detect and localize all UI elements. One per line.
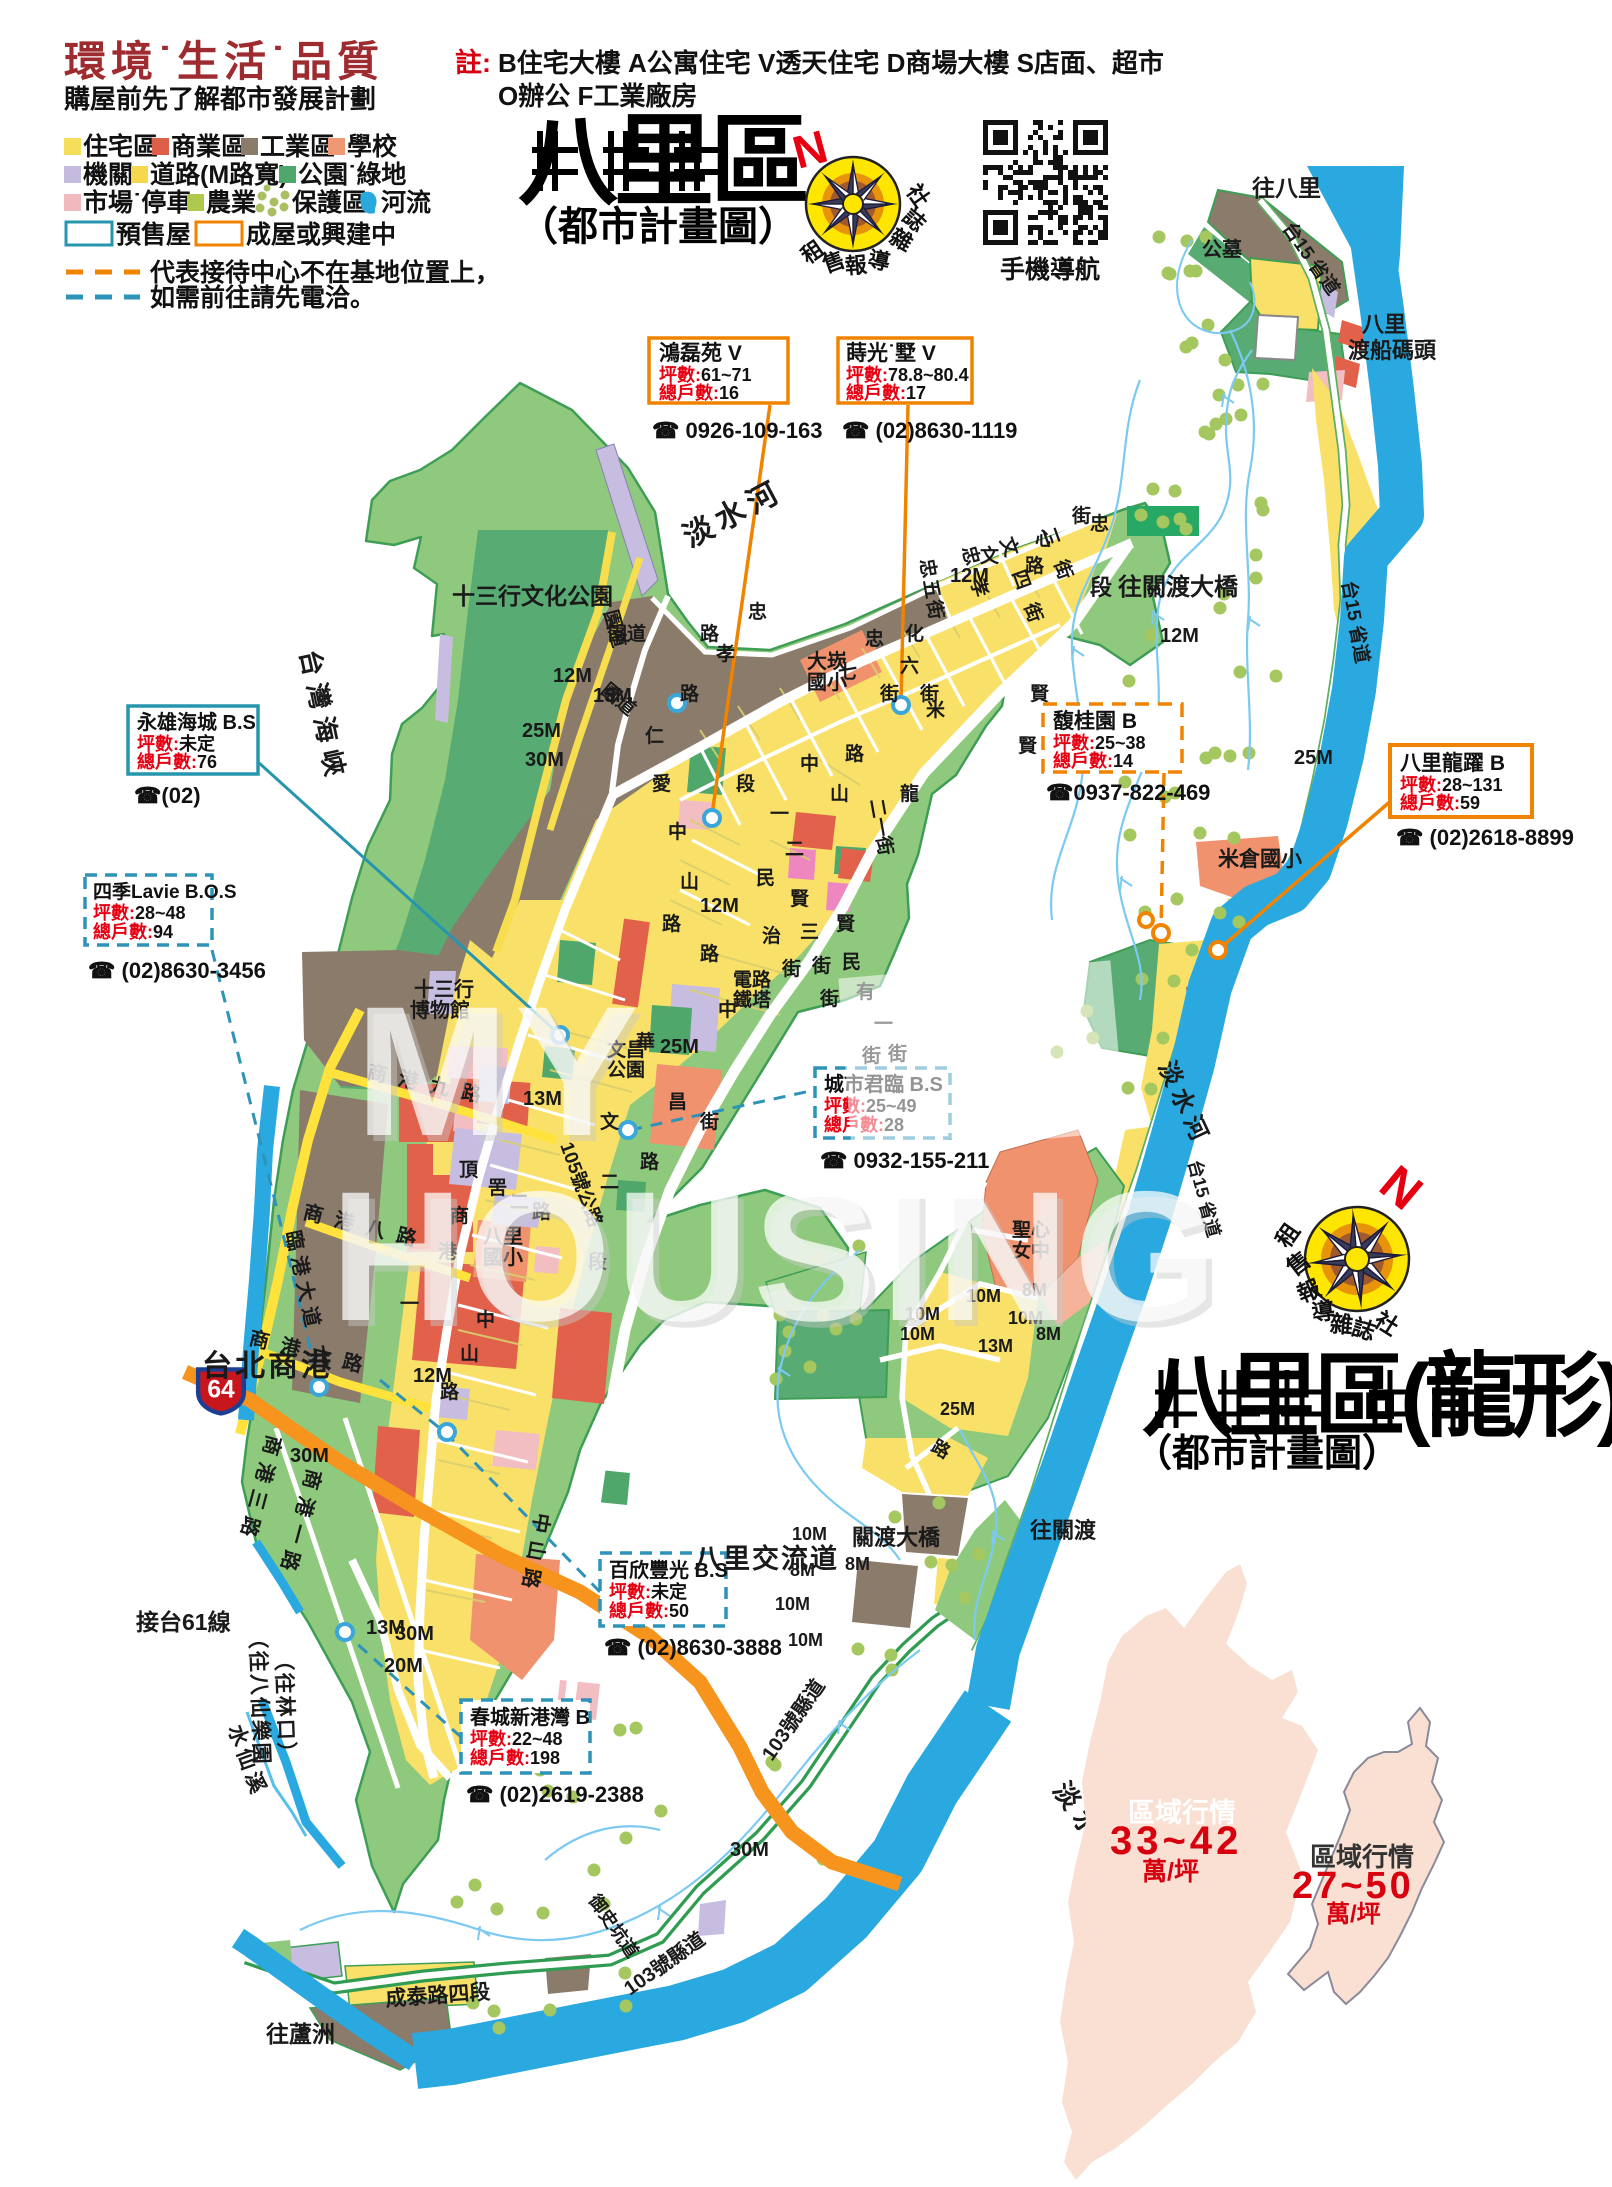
svg-text:（都市計畫圖）: （都市計畫圖） xyxy=(1134,1433,1400,1475)
svg-text:路: 路 xyxy=(1025,554,1045,577)
svg-text:街: 街 xyxy=(879,682,899,705)
svg-text:代表接待中心不在基地位置上，: 代表接待中心不在基地位置上， xyxy=(149,258,500,287)
svg-text:路: 路 xyxy=(440,1380,460,1403)
svg-text:四季Lavie B.O.S: 四季Lavie B.O.S xyxy=(93,881,237,903)
svg-text:文: 文 xyxy=(980,544,1000,567)
svg-text:總戶數:17: 總戶數:17 xyxy=(846,382,926,403)
svg-text:商業區: 商業區 xyxy=(171,132,246,161)
svg-text:總戶數:50: 總戶數:50 xyxy=(609,1600,689,1621)
svg-text:御史坑道: 御史坑道 xyxy=(584,1889,643,1961)
svg-text:12M: 12M xyxy=(553,665,592,687)
svg-text:路: 路 xyxy=(700,942,720,965)
svg-text:總戶數:76: 總戶數:76 xyxy=(137,751,217,772)
svg-text:農業: 農業 xyxy=(206,189,256,217)
svg-text:山: 山 xyxy=(830,783,849,805)
svg-text:萬/坪: 萬/坪 xyxy=(1142,1858,1199,1886)
svg-text:坪數:22~48: 坪數:22~48 xyxy=(470,1729,563,1749)
svg-text:住宅區: 住宅區 xyxy=(83,132,158,161)
svg-text:孝: 孝 xyxy=(716,643,735,665)
svg-text:永雄海城 B.S: 永雄海城 B.S xyxy=(136,710,256,734)
svg-text:總戶數:14: 總戶數:14 xyxy=(1053,750,1133,771)
svg-text:公墓: 公墓 xyxy=(1202,237,1243,261)
svg-text:愛: 愛 xyxy=(652,773,671,795)
svg-text:民: 民 xyxy=(842,952,861,973)
svg-text:賢: 賢 xyxy=(1018,735,1038,757)
svg-text:仁: 仁 xyxy=(645,724,664,747)
svg-text:賢: 賢 xyxy=(1030,683,1050,705)
svg-text:☎0937-822-469: ☎0937-822-469 xyxy=(1046,780,1210,805)
svg-text:賢: 賢 xyxy=(790,888,810,910)
svg-text:12M: 12M xyxy=(700,895,739,917)
svg-text:路: 路 xyxy=(662,912,682,935)
svg-text:☎ 0926-109-163: ☎ 0926-109-163 xyxy=(652,418,823,443)
svg-text:坪數:28~131: 坪數:28~131 xyxy=(1400,775,1503,795)
svg-text:民: 民 xyxy=(756,868,775,889)
svg-text:成屋或興建中: 成屋或興建中 xyxy=(246,221,396,249)
svg-text:10M: 10M xyxy=(788,1630,823,1650)
svg-text:30M: 30M xyxy=(290,1445,329,1467)
svg-text:接台61線: 接台61線 xyxy=(136,1609,231,1635)
svg-text:☎ (02)8630-3888: ☎ (02)8630-3888 xyxy=(604,1635,782,1660)
svg-text:社: 社 xyxy=(901,179,934,211)
svg-text:機關: 機關 xyxy=(83,161,133,189)
svg-text:段: 段 xyxy=(1090,575,1112,600)
svg-text:總戶數:94: 總戶數:94 xyxy=(93,921,173,942)
svg-text:山: 山 xyxy=(680,871,699,893)
svg-text:30M: 30M xyxy=(730,1839,769,1861)
svg-text:治: 治 xyxy=(762,924,781,947)
svg-text:鐵塔: 鐵塔 xyxy=(733,988,772,1011)
svg-text:往蘆洲: 往蘆洲 xyxy=(266,2021,335,2047)
svg-text:☎(02): ☎(02) xyxy=(134,783,201,808)
svg-text:電路: 電路 xyxy=(733,968,772,991)
svg-text:坪數:未定: 坪數:未定 xyxy=(137,733,215,754)
svg-text:工業區: 工業區 xyxy=(260,133,335,161)
svg-text:坪數:61~71: 坪數:61~71 xyxy=(659,365,752,385)
svg-text:忠: 忠 xyxy=(748,601,767,623)
svg-text:八里龍躍 B: 八里龍躍 B xyxy=(1400,751,1505,775)
svg-text:總戶數:198: 總戶數:198 xyxy=(470,1747,560,1768)
svg-text:鴻磊苑 V: 鴻磊苑 V xyxy=(659,341,742,365)
svg-text:環境˙生活˙品質: 環境˙生活˙品質 xyxy=(64,38,384,85)
svg-text:8M: 8M xyxy=(790,1560,815,1580)
svg-text:萬/坪: 萬/坪 xyxy=(1326,1901,1381,1928)
svg-text:中: 中 xyxy=(718,998,737,1021)
svg-text:馥桂園 B: 馥桂園 B xyxy=(1053,709,1137,733)
svg-text:關渡大橋: 關渡大橋 xyxy=(852,1525,941,1550)
svg-text:往關渡: 往關渡 xyxy=(1030,1518,1097,1543)
svg-text:10M: 10M xyxy=(775,1594,810,1614)
svg-text:春城新港灣 B: 春城新港灣 B xyxy=(469,1705,590,1729)
svg-text:淡水河: 淡水河 xyxy=(678,474,789,554)
svg-text:往關渡大橋: 往關渡大橋 xyxy=(1118,573,1239,601)
svg-text:米: 米 xyxy=(926,698,946,721)
svg-text:8M: 8M xyxy=(845,1554,870,1574)
svg-text:手機導航: 手機導航 xyxy=(1000,255,1100,284)
svg-text:段: 段 xyxy=(736,772,756,795)
svg-text:（都市計畫圖）: （都市計畫圖） xyxy=(518,205,798,249)
svg-text:導: 導 xyxy=(866,246,893,275)
svg-text:渡船碼頭: 渡船碼頭 xyxy=(1348,338,1437,363)
svg-text:街: 街 xyxy=(699,1110,719,1133)
svg-text:忠: 忠 xyxy=(1090,513,1109,535)
svg-text:八里區: 八里區 xyxy=(518,106,806,218)
svg-text:化: 化 xyxy=(905,622,924,645)
svg-text:☎ (02)8630-1119: ☎ (02)8630-1119 xyxy=(842,418,1017,443)
svg-text:☎ (02)8630-3456: ☎ (02)8630-3456 xyxy=(88,958,266,983)
svg-text:龍: 龍 xyxy=(900,782,919,805)
svg-text:12M: 12M xyxy=(1160,625,1199,647)
svg-text:忠: 忠 xyxy=(865,628,884,650)
svg-text:註:: 註: xyxy=(455,48,491,78)
svg-text:一: 一 xyxy=(770,804,789,825)
svg-text:預售屋: 預售屋 xyxy=(116,220,191,249)
svg-text:如需前往請先電洽。: 如需前往請先電洽。 xyxy=(150,283,375,312)
svg-text:街: 街 xyxy=(811,954,831,977)
svg-text:中: 中 xyxy=(800,752,819,775)
svg-text:103號縣道: 103號縣道 xyxy=(756,1675,829,1765)
svg-text:25M: 25M xyxy=(660,1036,699,1058)
svg-text:河流: 河流 xyxy=(381,189,431,217)
svg-text:坪數:78.8~80.4: 坪數:78.8~80.4 xyxy=(846,365,969,385)
svg-text:六: 六 xyxy=(900,654,919,677)
svg-text:社: 社 xyxy=(1370,1306,1403,1340)
svg-text:賢: 賢 xyxy=(836,913,856,935)
svg-text:總戶數:59: 總戶數:59 xyxy=(1400,792,1480,813)
svg-text:坪數:未定: 坪數:未定 xyxy=(609,1581,687,1602)
svg-text:路: 路 xyxy=(700,622,720,645)
svg-text:保護區: 保護區 xyxy=(291,188,367,217)
svg-text:街: 街 xyxy=(781,957,801,980)
svg-text:25M: 25M xyxy=(940,1399,975,1419)
svg-text:HOUSING: HOUSING xyxy=(330,1154,1221,1360)
svg-text:MY: MY xyxy=(355,969,645,1175)
svg-text:昌: 昌 xyxy=(668,1091,687,1113)
svg-text:B住宅大樓 A公寓住宅 V透天住宅 D商場大樓 S店面、超市: B住宅大樓 A公寓住宅 V透天住宅 D商場大樓 S店面、超市 xyxy=(498,48,1164,78)
svg-text:十三行文化公園: 十三行文化公園 xyxy=(452,583,613,609)
svg-text:總戶數:16: 總戶數:16 xyxy=(659,382,739,403)
svg-text:三: 三 xyxy=(800,922,819,943)
svg-text:報: 報 xyxy=(844,252,869,279)
svg-text:30M: 30M xyxy=(525,749,564,771)
svg-text:☎ (02)2618-8899: ☎ (02)2618-8899 xyxy=(1396,825,1574,850)
svg-text:米倉國小: 米倉國小 xyxy=(1218,847,1302,871)
svg-text:公園˙綠地: 公園˙綠地 xyxy=(298,160,406,189)
svg-text:八里交流道: 八里交流道 xyxy=(694,1543,839,1574)
svg-text:中: 中 xyxy=(668,820,687,843)
svg-text:七: 七 xyxy=(838,661,857,683)
svg-text:坪數:25~38: 坪數:25~38 xyxy=(1053,733,1146,753)
svg-text:25M: 25M xyxy=(522,720,561,742)
svg-text:學校: 學校 xyxy=(347,132,398,161)
svg-text:20M: 20M xyxy=(384,1655,423,1677)
svg-text:路: 路 xyxy=(845,742,865,765)
svg-text:33~42: 33~42 xyxy=(1110,1819,1242,1863)
svg-text:蒔光˙墅 V: 蒔光˙墅 V xyxy=(846,342,936,365)
svg-text:街: 街 xyxy=(1071,504,1091,527)
svg-text:二: 二 xyxy=(785,839,804,860)
svg-text:心: 心 xyxy=(1035,528,1054,550)
svg-text:購屋前先了解都市發展計劃: 購屋前先了解都市發展計劃 xyxy=(64,84,376,114)
svg-text:30M: 30M xyxy=(395,1623,434,1645)
svg-text:市場˙停車: 市場˙停車 xyxy=(83,188,191,217)
svg-text:路: 路 xyxy=(680,682,700,705)
svg-text:坪數:28~48: 坪數:28~48 xyxy=(93,903,186,923)
svg-text:25M: 25M xyxy=(1294,747,1333,769)
svg-text:往八里: 往八里 xyxy=(1252,175,1321,201)
svg-text:街: 街 xyxy=(819,987,839,1010)
svg-text:（往林口）: （往林口） xyxy=(271,1649,299,1765)
svg-text:台灣海峽: 台灣海峽 xyxy=(294,647,352,786)
svg-text:☎ (02)2619-2388: ☎ (02)2619-2388 xyxy=(466,1782,644,1807)
svg-text:八里: 八里 xyxy=(1362,312,1406,337)
svg-text:10M: 10M xyxy=(792,1524,827,1544)
